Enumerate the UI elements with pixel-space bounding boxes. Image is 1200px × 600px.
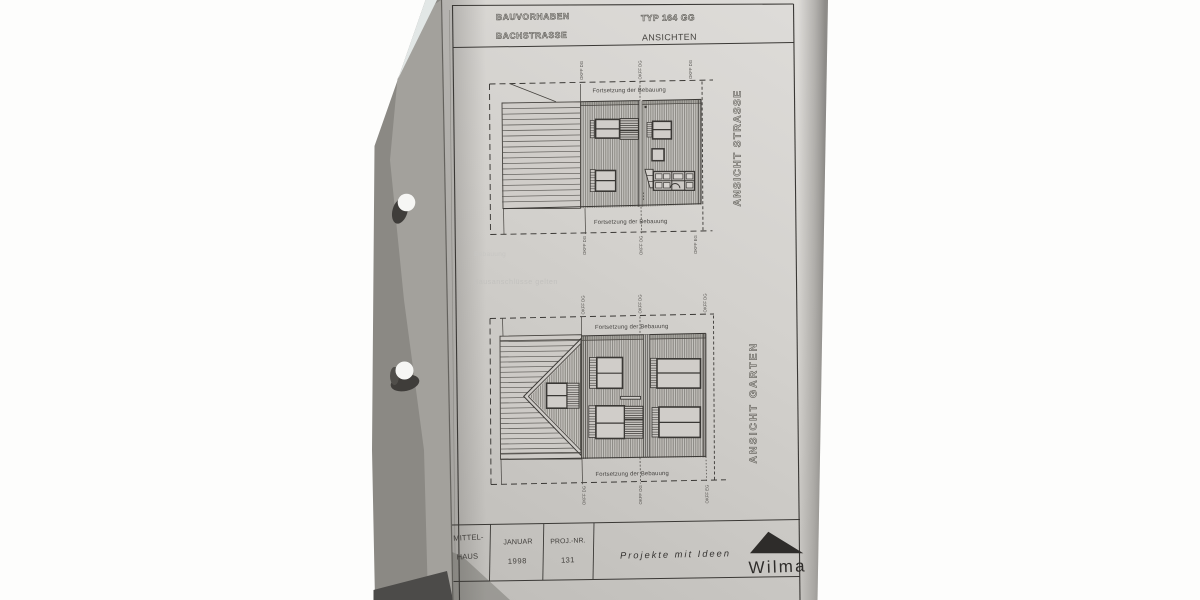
svg-text:ANSICHT STRASSE: ANSICHT STRASSE — [733, 90, 744, 207]
svg-text:131: 131 — [561, 555, 575, 564]
svg-text:1998: 1998 — [508, 556, 528, 566]
svg-text:BACHSTRASSE: BACHSTRASSE — [496, 30, 567, 41]
svg-text:ANSICHTEN: ANSICHTEN — [642, 32, 697, 43]
svg-text:OKFF DG: OKFF DG — [638, 294, 643, 314]
svg-text:HAUS: HAUS — [456, 551, 478, 561]
svg-text:OKFF DG: OKFF DG — [703, 293, 708, 313]
svg-text:OKFF DG: OKFF DG — [638, 60, 643, 80]
svg-text:Fortsetzung der Bebauung: Fortsetzung der Bebauung — [592, 87, 665, 94]
svg-text:OKFF OG: OKFF OG — [639, 235, 644, 255]
svg-text:TYP 164 GG: TYP 164 GG — [641, 12, 695, 23]
svg-text:OKFF DG: OKFF DG — [688, 59, 693, 79]
svg-text:OKFF EG: OKFF EG — [705, 484, 710, 504]
svg-text:PROJ.-NR.: PROJ.-NR. — [550, 537, 586, 545]
svg-text:OKFF DG: OKFF DG — [582, 235, 587, 255]
svg-text:OKFF DG: OKFF DG — [582, 485, 587, 505]
svg-text:Bebauung: Bebauung — [474, 251, 506, 258]
svg-text:Wilma: Wilma — [748, 556, 807, 577]
svg-text:Fortsetzung der Bebauung: Fortsetzung der Bebauung — [595, 471, 668, 478]
svg-text:MITTEL-: MITTEL- — [453, 532, 484, 543]
svg-text:OKFF DG: OKFF DG — [581, 295, 586, 315]
svg-text:JANUAR: JANUAR — [503, 536, 533, 546]
svg-text:OKFF EG: OKFF EG — [693, 234, 698, 254]
svg-text:Hausanschlüsse gelten: Hausanschlüsse gelten — [473, 277, 558, 286]
svg-text:Fortsetzung der Bebauung: Fortsetzung der Bebauung — [594, 219, 667, 226]
svg-text:OKFF DG: OKFF DG — [579, 60, 584, 80]
svg-text:ANSICHT GARTEN: ANSICHT GARTEN — [749, 342, 760, 464]
svg-text:Fortsetzung der Bebauung: Fortsetzung der Bebauung — [595, 324, 668, 331]
svg-text:BAUVORHABEN: BAUVORHABEN — [496, 11, 570, 22]
svg-text:OKFF OG: OKFF OG — [638, 485, 643, 505]
